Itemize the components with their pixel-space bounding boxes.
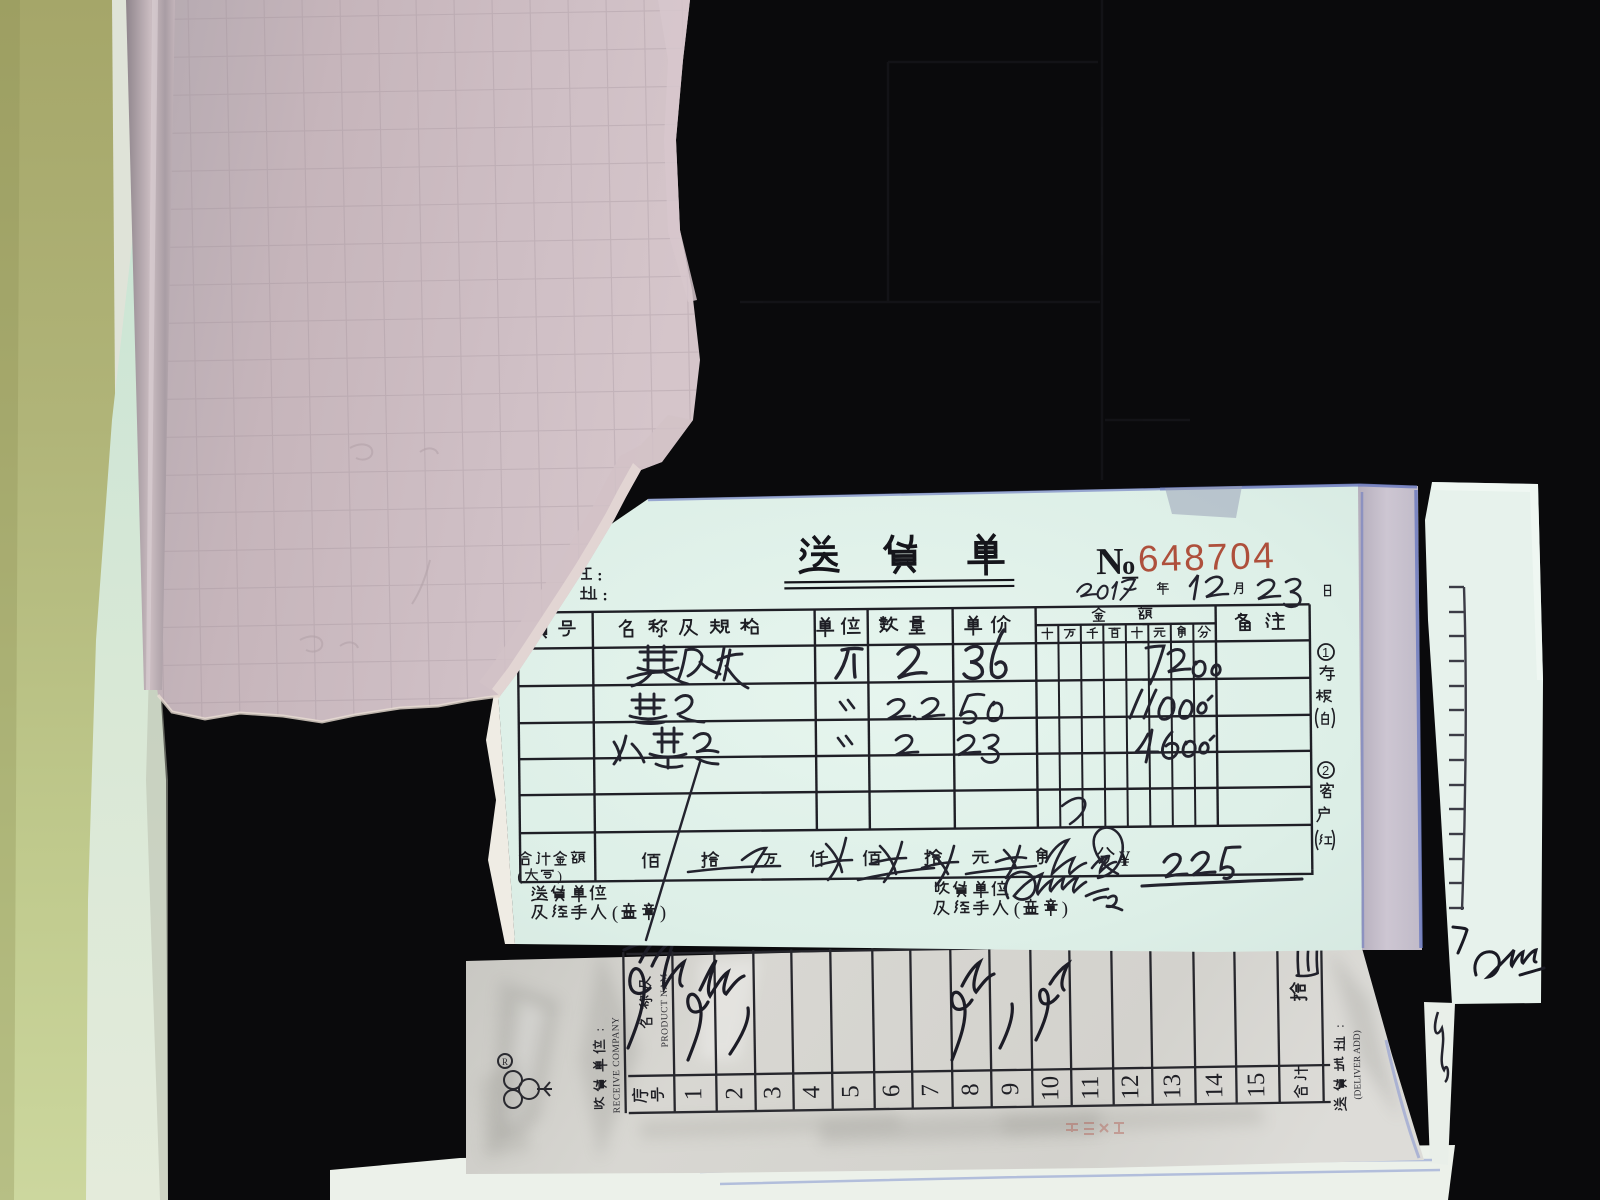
svg-text:5: 5 — [837, 1085, 864, 1098]
svg-text:): ) — [660, 903, 667, 924]
svg-text:(: ( — [1014, 899, 1021, 920]
svg-text:R: R — [502, 1057, 508, 1067]
svg-text:13: 13 — [1159, 1074, 1186, 1099]
svg-text:648704: 648704 — [1137, 535, 1277, 580]
svg-text:3: 3 — [759, 1086, 786, 1099]
svg-text:4: 4 — [798, 1085, 825, 1098]
svg-text:2: 2 — [1322, 763, 1329, 778]
svg-text:15: 15 — [1243, 1072, 1270, 1097]
svg-text:): ) — [557, 870, 562, 885]
svg-text:(DELIVER ADD): (DELIVER ADD) — [1352, 1030, 1364, 1100]
svg-text:2: 2 — [721, 1087, 748, 1100]
svg-text:N: N — [1096, 541, 1124, 583]
svg-text:6: 6 — [878, 1084, 905, 1097]
svg-text:7: 7 — [917, 1084, 944, 1097]
svg-text::: : — [597, 567, 603, 584]
svg-text:12: 12 — [1117, 1074, 1144, 1099]
svg-text::: : — [602, 587, 608, 604]
svg-text:11: 11 — [1077, 1076, 1104, 1100]
svg-text:8: 8 — [957, 1083, 984, 1096]
svg-text:1: 1 — [1322, 645, 1329, 660]
svg-text:14: 14 — [1201, 1073, 1228, 1099]
svg-text::: : — [1331, 1024, 1346, 1028]
svg-text:o: o — [1122, 551, 1135, 580]
svg-text:(: ( — [517, 870, 522, 885]
svg-text:1: 1 — [680, 1088, 707, 1101]
svg-text::: : — [591, 1028, 606, 1032]
svg-text:RECEIVE COMPANY: RECEIVE COMPANY — [611, 1017, 623, 1114]
svg-text:10: 10 — [1037, 1076, 1064, 1101]
svg-text:(: ( — [612, 903, 619, 924]
svg-text:9: 9 — [997, 1083, 1024, 1096]
svg-text:): ) — [1062, 898, 1069, 919]
